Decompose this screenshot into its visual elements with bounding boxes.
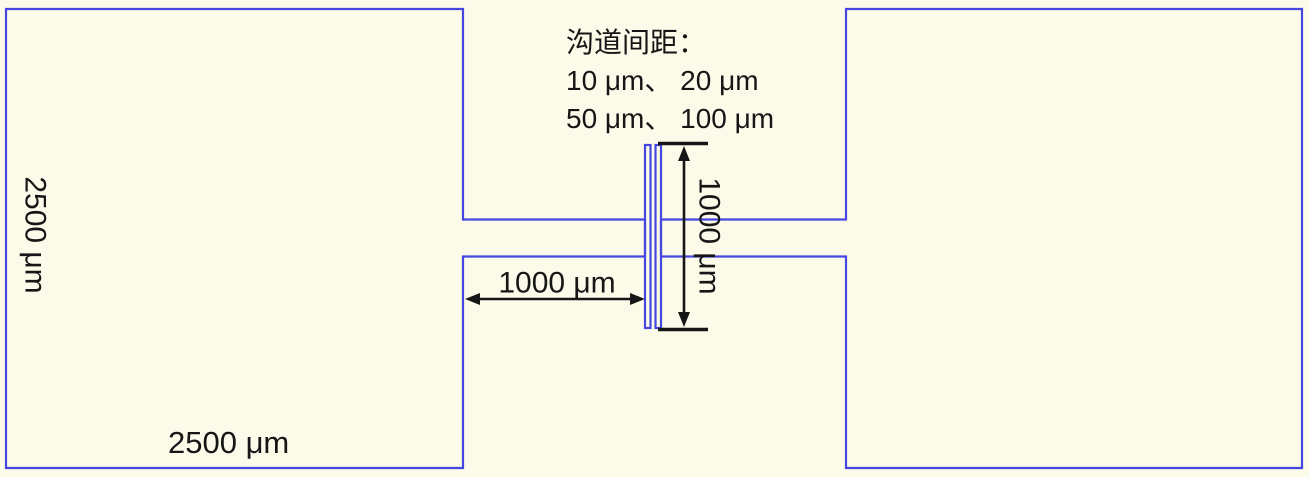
channel-length-label: 1000 μm: [693, 177, 726, 294]
channel-spacing-title: 沟道间距：: [566, 24, 774, 62]
arrow-right-head: [630, 293, 645, 305]
channel-spacing-note: 沟道间距： 10 μm、 20 μm 50 μm、 100 μm: [566, 24, 774, 138]
device-schematic: 沟道间距： 10 μm、 20 μm 50 μm、 100 μm 2500 μm…: [0, 0, 1309, 477]
left-finger-outline: [645, 145, 651, 328]
arrow-down-head: [678, 312, 690, 327]
arrow-up-head: [678, 146, 690, 161]
arrow-left-head: [465, 293, 480, 305]
left-pad-outline: [6, 9, 645, 468]
channel-spacing-values-1: 10 μm、 20 μm: [566, 62, 774, 100]
arm-length-label: 1000 μm: [498, 267, 615, 300]
right-finger-outline: [656, 145, 662, 328]
channel-spacing-values-2: 50 μm、 100 μm: [566, 100, 774, 138]
pad-width-label: 2500 μm: [168, 426, 289, 460]
pad-height-label: 2500 μm: [19, 176, 52, 293]
